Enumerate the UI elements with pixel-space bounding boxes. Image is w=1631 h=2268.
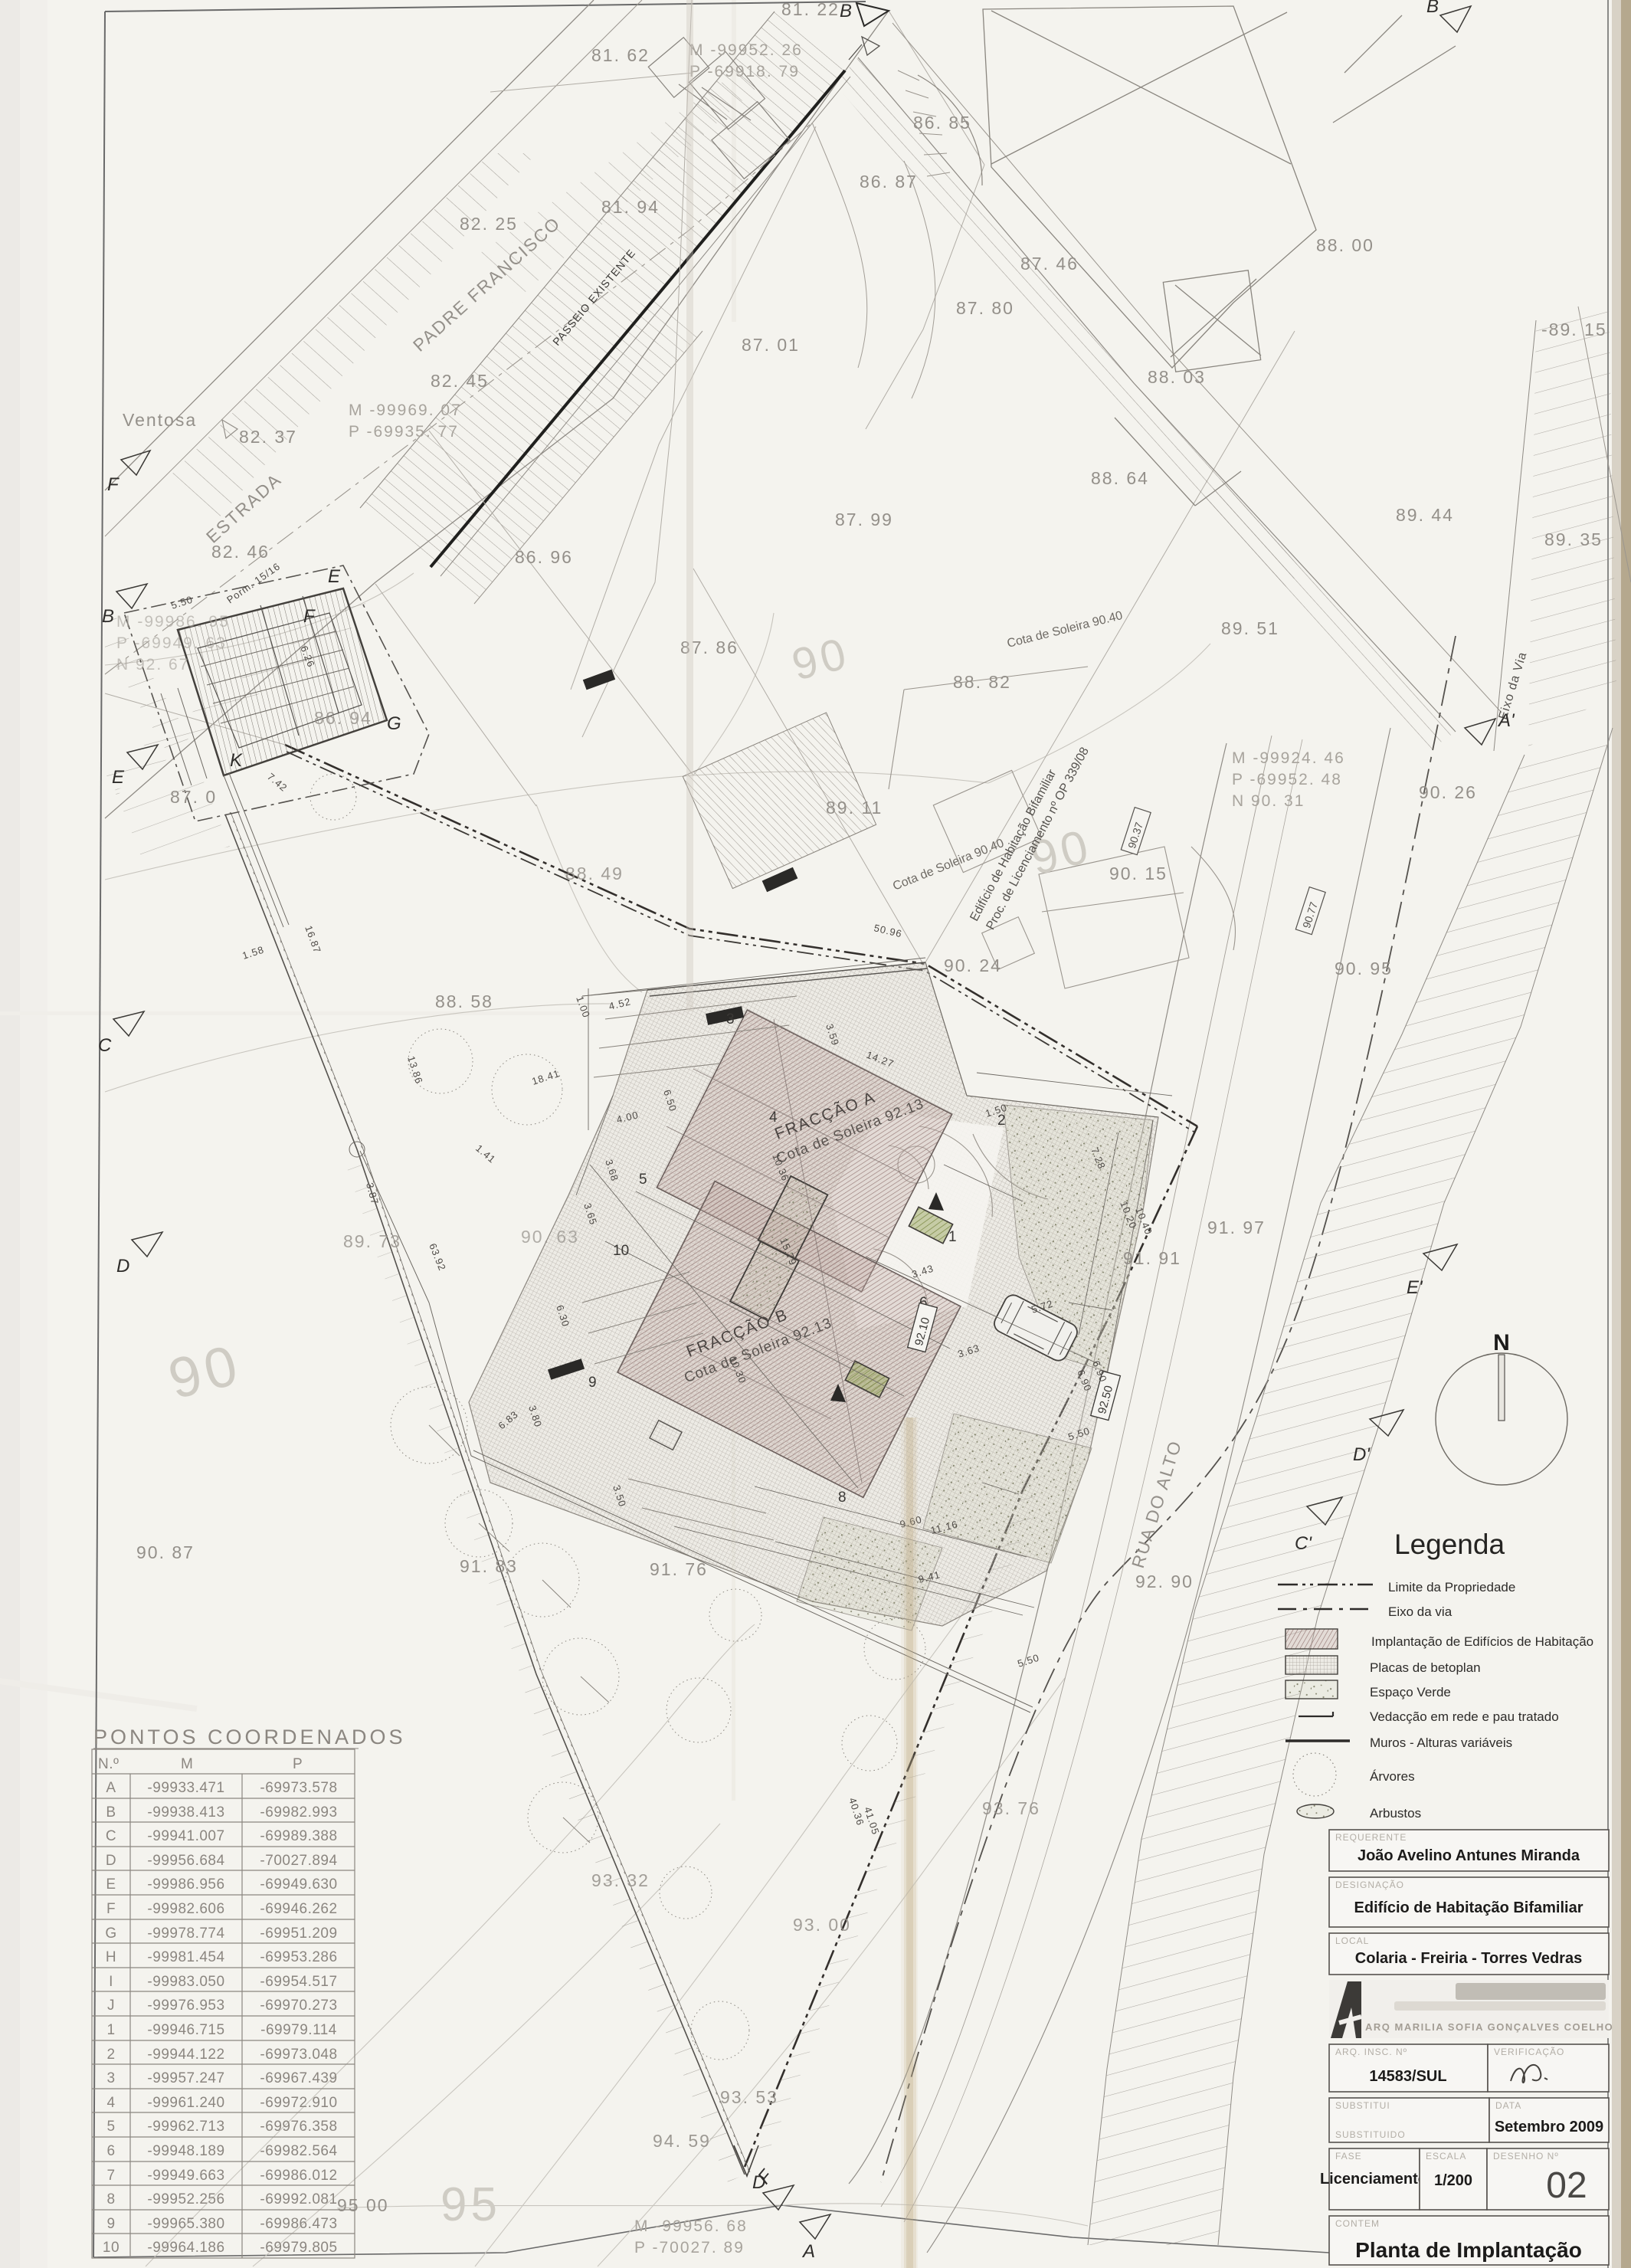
svg-text:1: 1 (106, 2022, 115, 2038)
svg-text:-99933.471: -99933.471 (147, 1780, 224, 1796)
svg-text:91. 76: 91. 76 (650, 1559, 708, 1579)
svg-text:90. 87: 90. 87 (136, 1542, 195, 1562)
svg-text:ARQ MARILIA SOFIA GONÇALVES CO: ARQ MARILIA SOFIA GONÇALVES COELHO (1365, 2021, 1613, 2033)
svg-text:8: 8 (838, 1490, 847, 1506)
svg-text:7: 7 (106, 2168, 115, 2184)
svg-text:-69979.805: -69979.805 (260, 2240, 337, 2256)
svg-text:86. 85: 86. 85 (913, 113, 971, 133)
svg-text:N 90. 31: N 90. 31 (1232, 792, 1305, 810)
svg-text:87. 46: 87. 46 (1020, 254, 1079, 274)
svg-text:91. 97: 91. 97 (1207, 1218, 1266, 1237)
svg-text:Espaço Verde: Espaço Verde (1370, 1685, 1451, 1699)
svg-text:M -99952. 26: M -99952. 26 (689, 41, 803, 59)
svg-text:82. 45: 82. 45 (431, 371, 489, 391)
svg-text:M -99986. 95: M -99986. 95 (116, 613, 230, 631)
svg-text:5: 5 (106, 2119, 115, 2135)
svg-text:81. 94: 81. 94 (601, 197, 660, 217)
svg-text:87. 0: 87. 0 (170, 787, 217, 807)
svg-text:REQUERENTE: REQUERENTE (1335, 1832, 1407, 1843)
svg-text:D': D' (1353, 1444, 1371, 1465)
svg-text:87. 01: 87. 01 (742, 335, 800, 355)
svg-text:-99956.684: -99956.684 (147, 1853, 224, 1869)
svg-text:-69992.081: -69992.081 (260, 2191, 337, 2207)
svg-text:89. 35: 89. 35 (1544, 529, 1603, 549)
svg-text:-69954.517: -69954.517 (260, 1974, 337, 1990)
svg-text:88. 64: 88. 64 (1091, 468, 1149, 488)
svg-text:CONTEM: CONTEM (1335, 2218, 1380, 2229)
svg-text:-99986.956: -99986.956 (147, 1876, 224, 1893)
svg-text:14583/SUL: 14583/SUL (1369, 2068, 1446, 2085)
svg-text:Licenciamento: Licenciamento (1320, 2171, 1427, 2188)
svg-text:90. 15: 90. 15 (1109, 864, 1168, 883)
svg-text:-69982.993: -69982.993 (260, 1804, 337, 1821)
svg-text:-99962.713: -99962.713 (147, 2119, 224, 2135)
svg-text:Setembro 2009: Setembro 2009 (1495, 2119, 1603, 2135)
svg-text:-69970.273: -69970.273 (260, 1998, 337, 2014)
svg-text:9: 9 (588, 1375, 597, 1391)
svg-text:86. 87: 86. 87 (860, 172, 918, 192)
svg-text:-99941.007: -99941.007 (147, 1828, 224, 1844)
svg-text:João Avelino Antunes Miranda: João Avelino Antunes Miranda (1358, 1847, 1580, 1864)
svg-text:DATA: DATA (1495, 2100, 1521, 2111)
svg-text:-69949.630: -69949.630 (260, 1876, 337, 1893)
svg-text:95: 95 (441, 2178, 501, 2231)
svg-text:-69972.910: -69972.910 (260, 2095, 337, 2111)
svg-text:Árvores: Árvores (1370, 1769, 1415, 1784)
svg-text:90. 63: 90. 63 (521, 1227, 579, 1247)
svg-text:92. 90: 92. 90 (1135, 1572, 1194, 1591)
svg-text:-99961.240: -99961.240 (147, 2095, 224, 2111)
svg-text:Legenda: Legenda (1394, 1529, 1505, 1560)
svg-text:E: E (106, 1876, 116, 1893)
svg-text:87. 99: 87. 99 (835, 510, 893, 529)
svg-text:10: 10 (103, 2240, 120, 2256)
svg-text:-99944.122: -99944.122 (147, 2047, 224, 2063)
svg-text:-99964.186: -99964.186 (147, 2240, 224, 2256)
svg-text:-89. 15: -89. 15 (1541, 320, 1607, 339)
svg-text:-99952.256: -99952.256 (147, 2191, 224, 2207)
svg-text:F: F (303, 606, 316, 627)
svg-text:P -69949. 63: P -69949. 63 (116, 634, 227, 652)
svg-text:-99976.953: -99976.953 (147, 1998, 224, 2014)
svg-text:DESIGNAÇÃO: DESIGNAÇÃO (1335, 1880, 1404, 1890)
svg-text:82. 25: 82. 25 (460, 214, 518, 234)
svg-text:P -69918. 79: P -69918. 79 (689, 63, 800, 80)
svg-text:89. 44: 89. 44 (1396, 505, 1454, 525)
svg-text:-99949.663: -99949.663 (147, 2168, 224, 2184)
svg-text:F: F (107, 474, 120, 495)
svg-text:5: 5 (639, 1172, 647, 1188)
svg-text:81. 62: 81. 62 (591, 45, 650, 65)
svg-text:A: A (801, 2241, 815, 2262)
svg-text:A': A' (1497, 710, 1515, 731)
svg-text:1/200: 1/200 (1434, 2172, 1472, 2189)
svg-text:3: 3 (106, 2070, 115, 2086)
svg-text:-99938.413: -99938.413 (147, 1804, 224, 1821)
svg-text:93. 53: 93. 53 (720, 2087, 778, 2107)
svg-text:J: J (107, 1998, 115, 2014)
svg-text:VERIFICAÇÃO: VERIFICAÇÃO (1494, 2047, 1564, 2057)
svg-text:ESCALA: ESCALA (1426, 2151, 1466, 2161)
svg-text:95 00: 95 00 (337, 2195, 389, 2215)
svg-text:C': C' (1295, 1533, 1312, 1554)
svg-text:D: D (106, 1853, 116, 1869)
svg-text:-69989.388: -69989.388 (260, 1828, 337, 1844)
svg-text:87. 80: 87. 80 (956, 298, 1014, 318)
svg-text:3: 3 (726, 1011, 735, 1027)
svg-text:-69986.012: -69986.012 (260, 2168, 337, 2184)
svg-text:90. 95: 90. 95 (1335, 959, 1393, 978)
svg-text:B: B (840, 1, 852, 21)
svg-text:89. 11: 89. 11 (826, 798, 883, 818)
svg-text:-99982.606: -99982.606 (147, 1901, 224, 1917)
svg-text:Ventosa: Ventosa (123, 410, 197, 430)
svg-text:-99965.380: -99965.380 (147, 2216, 224, 2232)
svg-text:02: 02 (1546, 2165, 1587, 2206)
svg-text:E: E (112, 767, 125, 788)
svg-text:88. 58: 88. 58 (435, 991, 493, 1011)
svg-text:Arbustos: Arbustos (1370, 1806, 1421, 1821)
svg-text:81. 22: 81. 22 (781, 0, 840, 19)
svg-text:LOCAL: LOCAL (1335, 1935, 1369, 1946)
svg-text:Eixo da via: Eixo da via (1388, 1604, 1453, 1619)
svg-text:Implantação de Edifícios de Ha: Implantação de Edifícios de Habitação (1371, 1634, 1593, 1649)
svg-text:-69946.262: -69946.262 (260, 1901, 337, 1917)
svg-text:M -99956. 68: M -99956. 68 (634, 2217, 748, 2235)
svg-text:82. 46: 82. 46 (211, 542, 270, 562)
svg-text:8: 8 (106, 2191, 115, 2207)
svg-text:90. 24: 90. 24 (944, 955, 1002, 975)
svg-text:Limite da Propriedade: Limite da Propriedade (1388, 1580, 1515, 1594)
svg-text:F: F (106, 1901, 116, 1917)
svg-text:P -69935. 77: P -69935. 77 (349, 423, 459, 441)
svg-text:I: I (109, 1974, 113, 1990)
svg-text:93. 76: 93. 76 (982, 1798, 1040, 1818)
svg-text:-99948.189: -99948.189 (147, 2143, 224, 2159)
svg-text:-69982.564: -69982.564 (260, 2143, 337, 2159)
svg-text:9: 9 (106, 2216, 115, 2232)
svg-text:Planta de Implantação: Planta de Implantação (1355, 2238, 1582, 2262)
svg-text:M -99969. 07: M -99969. 07 (349, 401, 462, 419)
svg-text:P: P (293, 1756, 303, 1772)
svg-text:SUBSTITUI: SUBSTITUI (1335, 2100, 1390, 2111)
svg-text:-99946.715: -99946.715 (147, 2022, 224, 2038)
svg-text:N: N (1493, 1330, 1510, 1355)
svg-text:91. 91: 91. 91 (1123, 1248, 1181, 1268)
svg-text:6: 6 (106, 2143, 115, 2159)
svg-text:-69986.473: -69986.473 (260, 2216, 337, 2232)
svg-text:M: M (181, 1756, 193, 1772)
svg-text:-99978.774: -99978.774 (147, 1926, 224, 1942)
svg-text:G: G (105, 1926, 116, 1942)
svg-text:E: E (328, 566, 341, 587)
svg-text:N.º: N.º (98, 1756, 119, 1772)
svg-text:Colaria - Freiria - Torres Ved: Colaria - Freiria - Torres Vedras (1355, 1950, 1582, 1967)
svg-text:SUBSTITUIDO: SUBSTITUIDO (1335, 2129, 1406, 2140)
svg-text:A: A (106, 1780, 116, 1796)
svg-text:-69973.048: -69973.048 (260, 2047, 337, 2063)
svg-text:N 92. 67: N 92. 67 (116, 656, 189, 674)
svg-text:82. 37: 82. 37 (239, 427, 297, 447)
svg-text:B: B (102, 606, 114, 627)
svg-text:4: 4 (106, 2095, 115, 2111)
svg-text:1: 1 (948, 1229, 957, 1245)
svg-text:G: G (387, 713, 401, 734)
svg-text:D: D (116, 1256, 129, 1277)
svg-text:2: 2 (106, 2047, 115, 2063)
svg-text:-69979.114: -69979.114 (260, 2022, 337, 2038)
svg-text:-99983.050: -99983.050 (147, 1974, 224, 1990)
svg-text:Placas de betoplan: Placas de betoplan (1370, 1660, 1481, 1675)
svg-text:-69967.439: -69967.439 (260, 2070, 337, 2086)
svg-text:-69953.286: -69953.286 (260, 1949, 337, 1965)
svg-text:10: 10 (613, 1243, 629, 1259)
svg-text:PONTOS COORDENADOS: PONTOS COORDENADOS (93, 1726, 406, 1749)
svg-text:P -70027. 89: P -70027. 89 (634, 2239, 745, 2257)
svg-text:-69973.578: -69973.578 (260, 1780, 337, 1796)
svg-text:Muros - Alturas variáveis: Muros - Alturas variáveis (1370, 1735, 1512, 1750)
svg-text:86. 96: 86. 96 (515, 547, 573, 567)
svg-text:86. 94: 86. 94 (314, 708, 372, 728)
svg-text:-70027.894: -70027.894 (260, 1853, 337, 1869)
svg-text:FASE: FASE (1335, 2151, 1362, 2161)
svg-text:B: B (106, 1804, 116, 1821)
svg-text:ARQ. INSC. Nº: ARQ. INSC. Nº (1335, 2047, 1407, 2057)
svg-text:E': E' (1407, 1277, 1423, 1298)
svg-text:DESENHO Nº: DESENHO Nº (1493, 2151, 1559, 2161)
svg-text:88. 82: 88. 82 (953, 672, 1011, 692)
svg-text:88. 00: 88. 00 (1316, 235, 1374, 255)
svg-text:H: H (106, 1949, 116, 1965)
svg-text:-99957.247: -99957.247 (147, 2070, 224, 2086)
svg-text:Edifício de Habitação Bifamili: Edifício de Habitação Bifamiliar (1354, 1899, 1584, 1916)
svg-text:-69976.358: -69976.358 (260, 2119, 337, 2135)
svg-text:B: B (1426, 0, 1439, 17)
svg-text:C: C (98, 1035, 112, 1056)
svg-text:Vedacção em rede e pau tratado: Vedacção em rede e pau tratado (1370, 1709, 1559, 1724)
svg-text:94. 59: 94. 59 (653, 2131, 711, 2151)
svg-text:88. 49: 88. 49 (565, 864, 624, 883)
svg-text:P -69952. 48: P -69952. 48 (1232, 771, 1342, 788)
svg-text:K: K (230, 750, 243, 771)
svg-text:-99981.454: -99981.454 (147, 1949, 224, 1965)
svg-text:-69951.209: -69951.209 (260, 1926, 337, 1942)
svg-text:C: C (106, 1828, 116, 1844)
svg-text:89. 51: 89. 51 (1221, 618, 1279, 638)
svg-text:90. 26: 90. 26 (1419, 782, 1477, 802)
svg-text:M -99924. 46: M -99924. 46 (1232, 749, 1345, 767)
svg-text:4: 4 (769, 1109, 778, 1126)
svg-text:88. 03: 88. 03 (1148, 367, 1206, 387)
